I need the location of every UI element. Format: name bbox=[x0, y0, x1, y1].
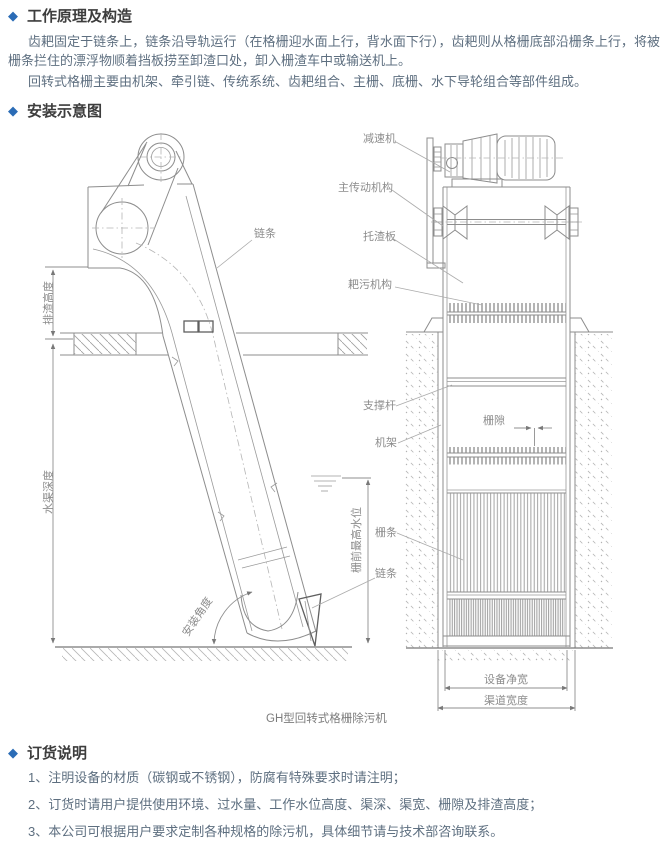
label-chain-right: 链条 bbox=[375, 566, 397, 580]
installation-diagram: 排渣高度 水渠深度 栅前最高水位 安装角度 链条 bbox=[0, 125, 660, 727]
principle-heading: ◆ 工作原理及构造 bbox=[8, 5, 132, 26]
label-max-water-level: 栅前最高水位 bbox=[349, 507, 363, 573]
ordering-item-2: 2、订货时请用户提供使用环境、过水量、工作水位高度、渠深、渠宽、栅隙及排渣高度； bbox=[28, 795, 648, 814]
diagram-title: 安装示意图 bbox=[27, 100, 102, 121]
label-slag-plate: 托渣板 bbox=[363, 229, 396, 243]
label-channel-width: 渠道宽度 bbox=[484, 693, 528, 707]
label-equipment-width: 设备净宽 bbox=[484, 672, 528, 686]
diagram-heading: ◆ 安装示意图 bbox=[8, 100, 102, 121]
label-support-rod: 支撑杆 bbox=[363, 398, 396, 412]
label-grid-gap: 栅隙 bbox=[483, 413, 505, 427]
water-level-icon bbox=[311, 476, 341, 491]
label-grid-bar: 栅条 bbox=[375, 525, 397, 539]
ordering-item-1: 1、注明设备的材质（碳钢或不锈钢），防腐有特殊要求时请注明； bbox=[28, 768, 648, 787]
label-main-drive: 主传动机构 bbox=[338, 180, 393, 194]
label-discharge-height: 排渣高度 bbox=[41, 281, 55, 325]
diagram-caption: GH型回转式格栅除污机 bbox=[266, 711, 387, 725]
ordering-item-3: 3、本公司可根据用户要求定制各种规格的除污机，具体细节请与技术部咨询联系。 bbox=[28, 822, 648, 841]
label-rake-mechanism: 耙污机构 bbox=[348, 277, 392, 291]
diamond-bullet-icon: ◆ bbox=[8, 9, 18, 22]
label-channel-depth: 水渠深度 bbox=[41, 470, 55, 514]
ordering-title: 订货说明 bbox=[27, 742, 87, 763]
principle-paragraph-1: 齿耙固定于链条上，链条沿导轨运行（在格栅迎水面上行，背水面下行），齿耙则从格栅底… bbox=[8, 32, 660, 70]
label-chain-left: 链条 bbox=[254, 226, 276, 240]
front-view-drawing: 栅隙 设备净宽 渠道宽度 bbox=[312, 131, 613, 711]
label-install-angle: 安装角度 bbox=[179, 594, 215, 638]
label-reducer: 减速机 bbox=[363, 131, 396, 145]
side-view-drawing: 排渣高度 水渠深度 栅前最高水位 安装角度 链条 bbox=[41, 133, 371, 661]
diamond-bullet-icon: ◆ bbox=[8, 746, 18, 759]
principle-title: 工作原理及构造 bbox=[27, 5, 132, 26]
catalog-page: ◆ 工作原理及构造 齿耙固定于链条上，链条沿导轨运行（在格栅迎水面上行，背水面下… bbox=[0, 0, 660, 841]
ordering-heading: ◆ 订货说明 bbox=[8, 742, 87, 763]
diamond-bullet-icon: ◆ bbox=[8, 104, 18, 117]
label-frame: 机架 bbox=[375, 435, 397, 449]
principle-paragraph-2: 回转式格栅主要由机架、牵引链、传统系统、齿耙组合、主栅、底栅、水下导轮组合等部件… bbox=[8, 72, 660, 91]
